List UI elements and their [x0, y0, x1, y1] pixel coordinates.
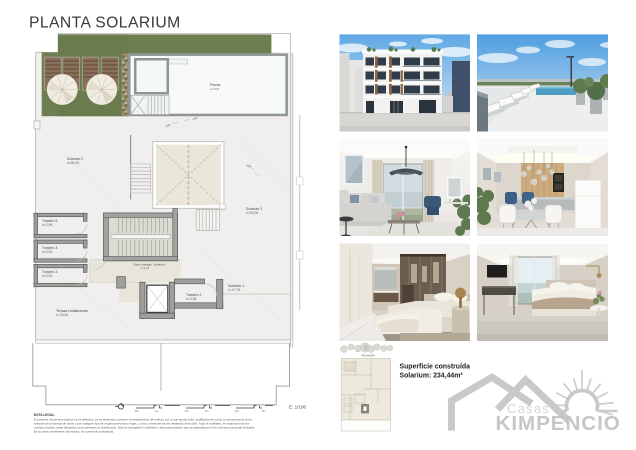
svg-text:4m: 4m: [235, 410, 238, 413]
svg-text:Piscina: Piscina: [210, 83, 221, 87]
svg-text:m.85,49: m.85,49: [67, 161, 79, 165]
svg-text:m.0,98: m.0,98: [186, 297, 196, 301]
svg-text:PLANTA SOLARIUM: PLANTA SOLARIUM: [29, 15, 181, 32]
svg-text:m.3,96: m.3,96: [42, 223, 52, 227]
svg-text:E: 1/100: E: 1/100: [289, 405, 307, 410]
svg-text:m.3,94: m.3,94: [42, 274, 52, 278]
svg-text:m.59,06: m.59,06: [246, 211, 258, 215]
svg-text:0m: 0m: [135, 410, 138, 413]
svg-text:3m: 3m: [205, 410, 208, 413]
svg-text:Zona: Instalac. Solarium: Zona: Instalac. Solarium: [133, 263, 166, 267]
svg-text:m.28,66: m.28,66: [56, 313, 68, 317]
svg-text:m.47,33: m.47,33: [228, 288, 240, 292]
svg-text:Solarium: 234,44m²: Solarium: 234,44m²: [400, 372, 464, 379]
svg-text:2m: 2m: [185, 410, 188, 413]
svg-text:FACHADA: FACHADA: [362, 353, 375, 357]
svg-text:NOTA LEGAL:: NOTA LEGAL:: [34, 413, 55, 417]
svg-text:5m: 5m: [262, 410, 265, 413]
svg-text:1m: 1m: [155, 410, 158, 413]
svg-text:Superficie construída: Superficie construída: [400, 364, 471, 371]
svg-text:Es un plano meramente informat: Es un plano meramente informativo, sin c…: [34, 430, 114, 434]
svg-text:m.0,94: m.0,94: [42, 250, 52, 254]
svg-text:m.44,87: m.44,87: [210, 87, 220, 91]
svg-text:KIMPENCIO: KIMPENCIO: [496, 412, 621, 435]
svg-text:m.3,76: m.3,76: [140, 266, 150, 270]
